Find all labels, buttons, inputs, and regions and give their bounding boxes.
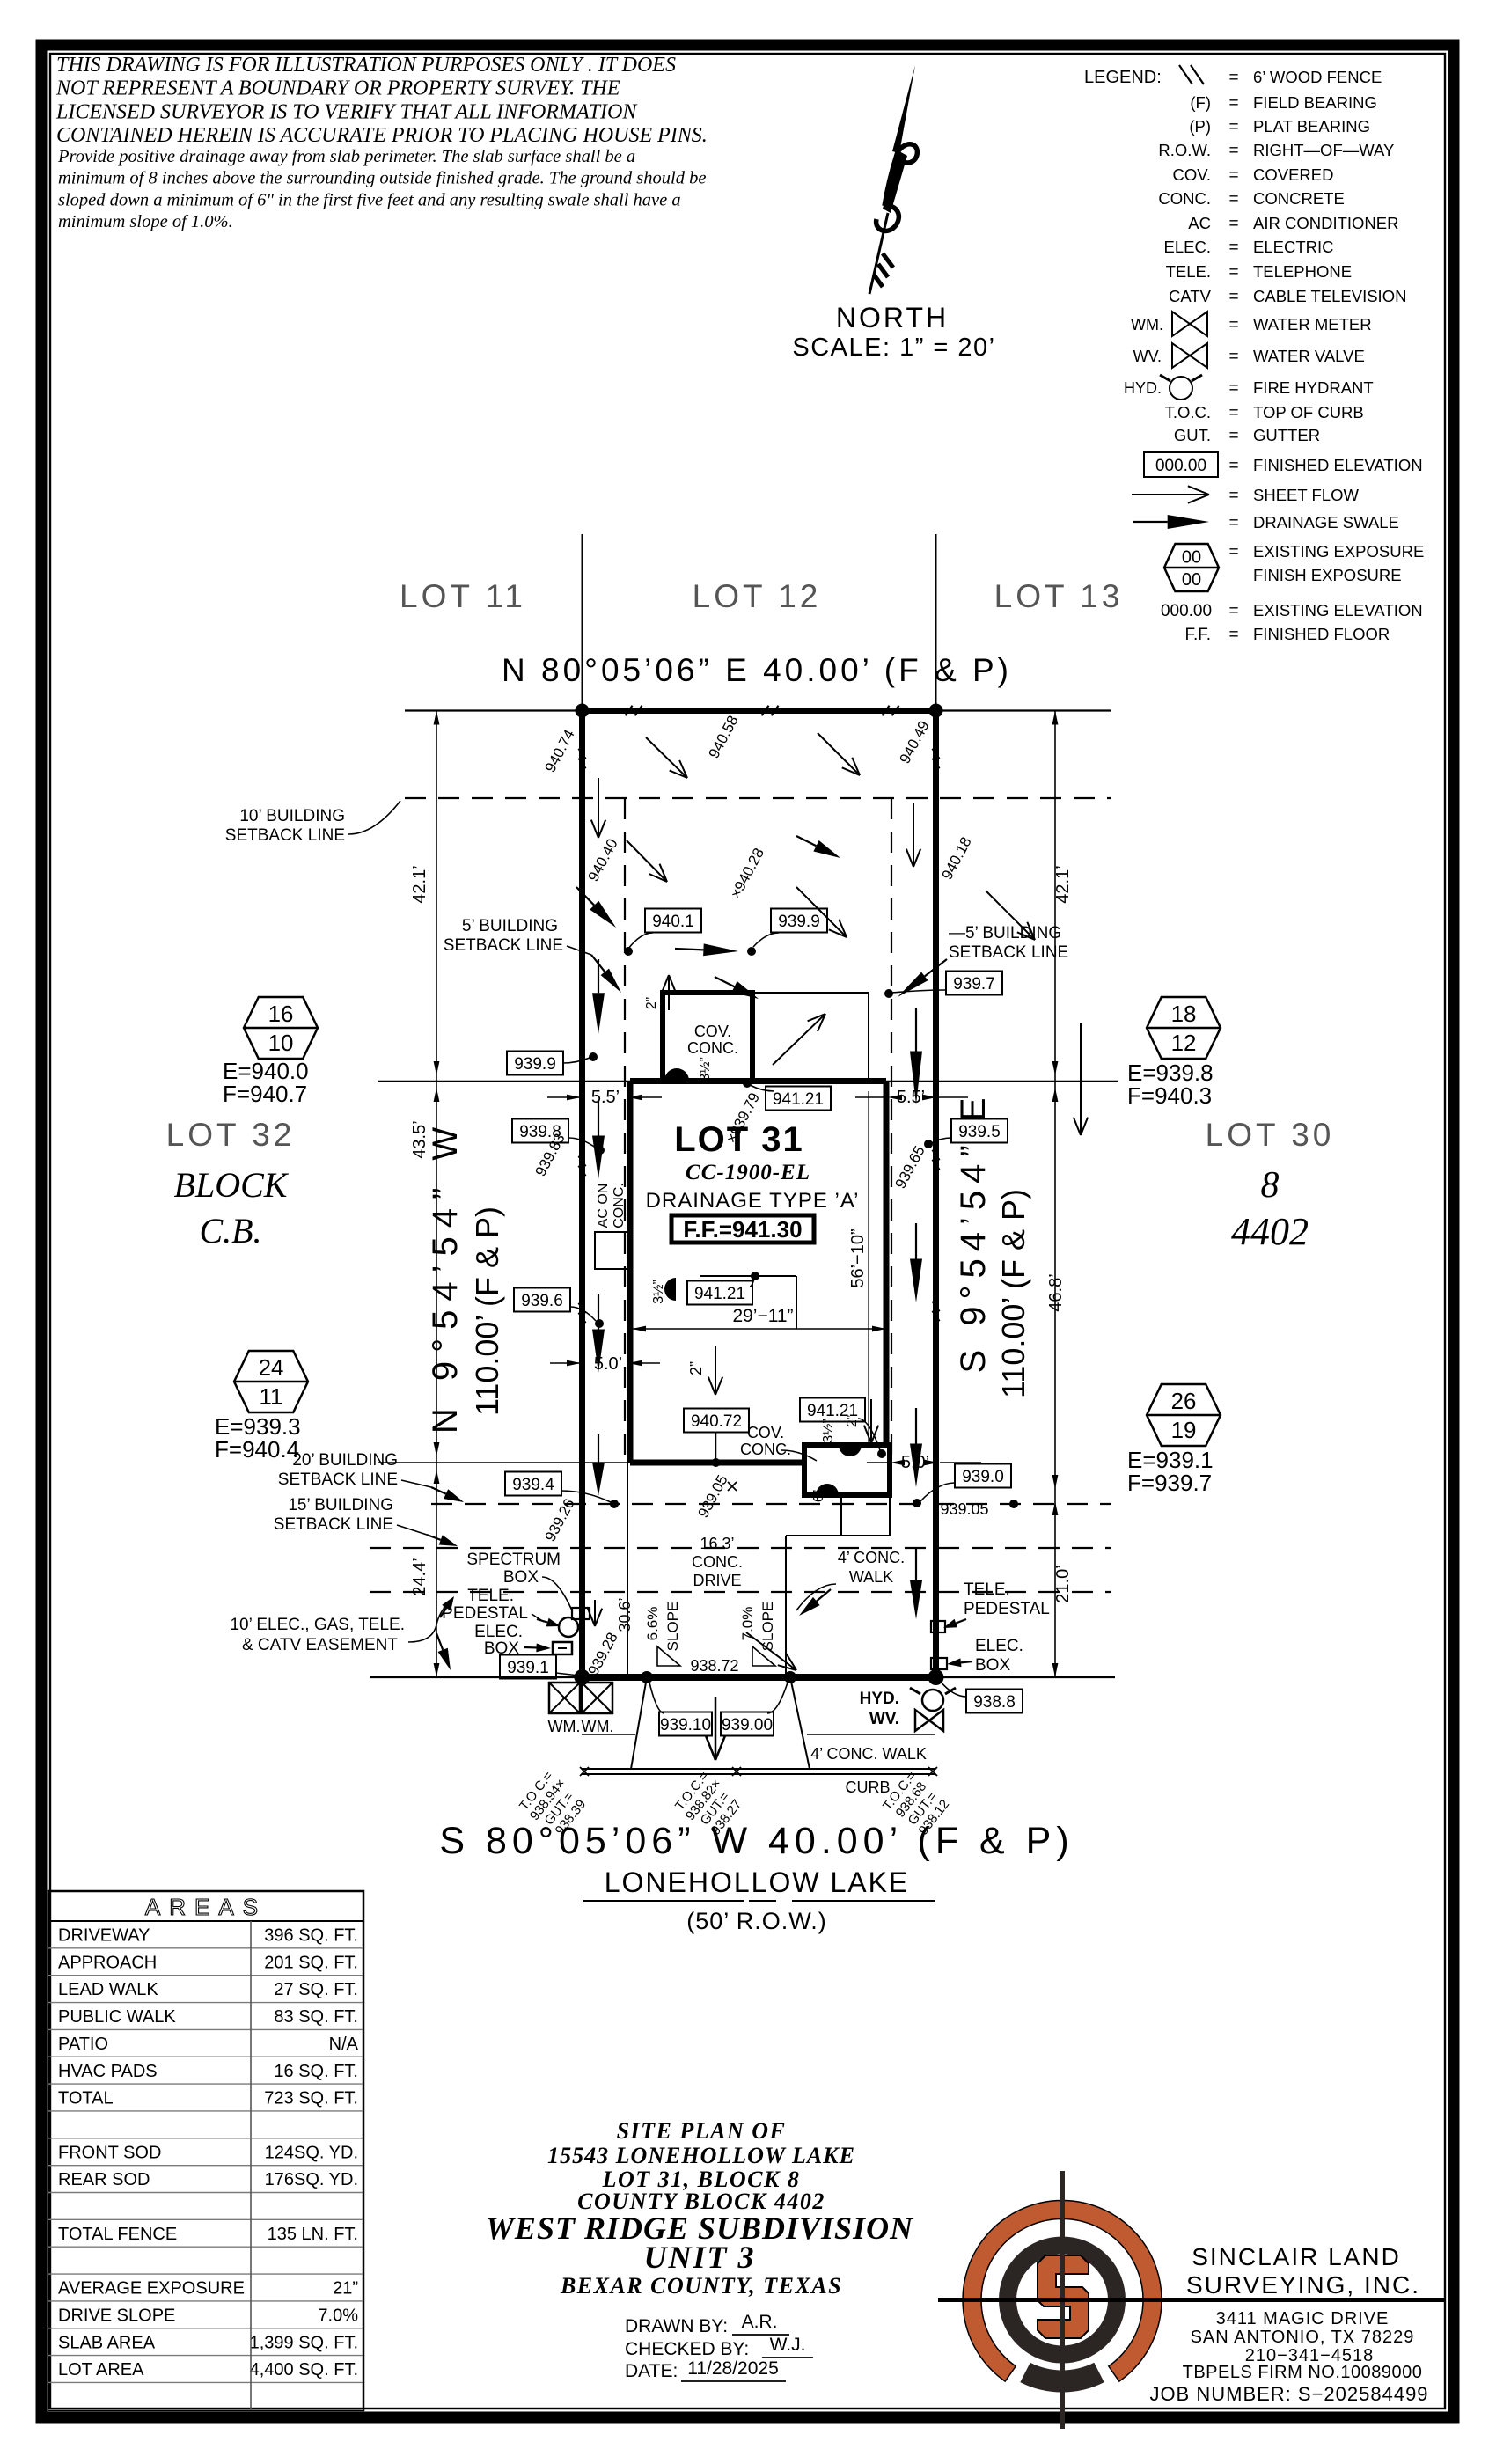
svg-text:HYD.: HYD. [1124,379,1162,397]
svg-text:11/28/2025: 11/28/2025 [687,2358,779,2379]
svg-text:2”: 2” [687,1361,705,1375]
svg-text:16.3’: 16.3’ [700,1535,734,1552]
svg-text:=: = [1228,514,1238,532]
svg-text:LOT 32: LOT 32 [166,1117,296,1153]
svg-text:TOP OF CURB: TOP OF CURB [1253,403,1364,422]
svg-text:=: = [1228,118,1238,136]
svg-text:FIELD BEARING: FIELD BEARING [1253,93,1377,112]
svg-text:CONCRETE: CONCRETE [1253,189,1345,208]
svg-text:RIGHT—OF—WAY: RIGHT—OF—WAY [1253,141,1394,159]
svg-text:LEAD WALK: LEAD WALK [58,1980,158,1999]
svg-text:=: = [1228,427,1238,445]
svg-text:DRAWN BY:: DRAWN BY: [625,2316,728,2336]
svg-text:2”: 2” [644,997,659,1009]
svg-text:TOTAL FENCE: TOTAL FENCE [58,2225,177,2244]
svg-text:WM.: WM. [548,1718,581,1735]
svg-text:TOTAL: TOTAL [58,2089,114,2108]
svg-text:24.4’: 24.4’ [410,1558,429,1595]
svg-text:TELE.: TELE. [964,1580,1010,1599]
svg-text:DRAINAGE TYPE ’A’: DRAINAGE TYPE ’A’ [646,1189,860,1213]
svg-text:CONC.: CONC. [692,1553,743,1571]
svg-text:SETBACK LINE: SETBACK LINE [274,1515,393,1534]
svg-text:WM.: WM. [1131,316,1163,334]
svg-text:NORTH: NORTH [836,302,949,334]
svg-text:TELE.: TELE. [467,1587,514,1605]
svg-text:T.O.C.: T.O.C. [1165,403,1211,422]
svg-text:ELECTRIC: ELECTRIC [1253,238,1334,256]
svg-text:LICENSED SURVEYOR IS TO VERIFY: LICENSED SURVEYOR IS TO VERIFY THAT ALL … [55,100,638,123]
svg-text:20’ BUILDING: 20’ BUILDING [292,1451,398,1470]
svg-text:00: 00 [1182,570,1201,590]
svg-text:NOT REPRESENT A BOUNDARY OR PR: NOT REPRESENT A BOUNDARY OR PROPERTY SUR… [55,77,620,100]
svg-text:939.0: 939.0 [962,1468,1004,1486]
svg-text:WV.: WV. [1133,348,1162,365]
svg-text:SLOPE: SLOPE [759,1602,776,1652]
svg-text:939.1: 939.1 [507,1659,549,1677]
svg-text:=: = [1228,487,1238,505]
svg-text:939.9: 939.9 [514,1055,556,1074]
svg-text:10: 10 [268,1031,294,1056]
svg-text:201 SQ. FT.: 201 SQ. FT. [264,1953,358,1972]
svg-text:SETBACK LINE: SETBACK LINE [225,826,345,845]
svg-text:=: = [1228,166,1238,185]
svg-text:=: = [1228,379,1238,398]
svg-text:LOT 30: LOT 30 [1206,1117,1335,1153]
svg-text:BLOCK: BLOCK [174,1165,290,1205]
svg-text:BOX: BOX [503,1568,539,1587]
svg-text:WATER METER: WATER METER [1253,315,1372,334]
svg-text:AREAS: AREAS [145,1894,267,1920]
svg-text:12: 12 [1171,1031,1197,1056]
svg-text:PATIO: PATIO [58,2035,108,2054]
svg-text:LOT 11: LOT 11 [400,578,526,614]
svg-text:FINISHED ELEVATION: FINISHED ELEVATION [1253,456,1423,474]
svg-text:SLOPE: SLOPE [664,1602,681,1652]
svg-text:DRIVEWAY: DRIVEWAY [58,1926,150,1946]
svg-text:Provide positive drainage away: Provide positive drainage away from slab… [57,147,635,166]
svg-text:3½”: 3½” [698,1057,713,1082]
svg-text:18: 18 [1171,1002,1197,1027]
svg-text:APPROACH: APPROACH [58,1953,157,1972]
svg-text:CABLE TELEVISION: CABLE TELEVISION [1253,287,1406,305]
svg-text:124SQ. YD.: 124SQ. YD. [265,2143,358,2162]
svg-text:SETBACK LINE: SETBACK LINE [444,936,563,955]
svg-text:FINISH EXPOSURE: FINISH EXPOSURE [1253,566,1402,584]
svg-text:A.R.: A.R. [742,2312,778,2332]
svg-text:=: = [1228,457,1238,475]
svg-text:938.8: 938.8 [973,1693,1016,1712]
svg-text:29’−11”: 29’−11” [732,1306,793,1326]
svg-text:& CATV EASEMENT: & CATV EASEMENT [242,1636,398,1654]
svg-text:CONC.: CONC. [1158,189,1211,208]
svg-text:ELEC.: ELEC. [975,1637,1023,1655]
svg-text:5’ BUILDING: 5’ BUILDING [462,917,558,935]
svg-text:minimum slope of 1.0%.: minimum slope of 1.0%. [58,212,233,231]
svg-text:SINCLAIR LAND: SINCLAIR LAND [1192,2243,1401,2270]
svg-text:DRIVE SLOPE: DRIVE SLOPE [58,2306,175,2325]
svg-text:8: 8 [1261,1165,1280,1206]
svg-text:PEDESTAL: PEDESTAL [442,1604,528,1623]
svg-text:2”: 2” [845,1415,860,1427]
svg-text:3411 MAGIC DRIVE: 3411 MAGIC DRIVE [1216,2309,1390,2328]
svg-text:AC: AC [1188,214,1211,232]
svg-text:N/A: N/A [329,2035,359,2054]
svg-text:F=940.7: F=940.7 [223,1081,307,1107]
svg-text:FINISHED FLOOR: FINISHED FLOOR [1253,625,1390,643]
svg-text:F.F.=941.30: F.F.=941.30 [683,1216,802,1243]
svg-text:F=940.3: F=940.3 [1127,1082,1212,1109]
svg-text:TELEPHONE: TELEPHONE [1253,262,1352,281]
svg-text:(P): (P) [1189,117,1211,136]
svg-text:46.8’: 46.8’ [1046,1273,1066,1311]
svg-text:42.1’: 42.1’ [410,865,429,903]
svg-text:939.6: 939.6 [521,1292,563,1310]
svg-text:SAN ANTONIO, TX 78229: SAN ANTONIO, TX 78229 [1191,2328,1415,2347]
svg-text:5.5’: 5.5’ [591,1088,620,1107]
svg-text:135 LN. FT.: 135 LN. FT. [268,2225,358,2244]
svg-text:=: = [1228,190,1238,209]
svg-text:SCALE: 1” = 20’: SCALE: 1” = 20’ [792,334,995,362]
svg-text:ELEC.: ELEC. [474,1623,523,1641]
svg-text:LONEHOLLOW LAKE: LONEHOLLOW LAKE [605,1866,910,1898]
svg-text:COV.: COV. [1172,165,1211,184]
svg-text:F=940.4: F=940.4 [215,1436,299,1463]
svg-text:N 80°05’06” E 40.00’ (F & P): N 80°05’06” E 40.00’ (F & P) [502,652,1012,688]
svg-text:REAR SOD: REAR SOD [58,2170,150,2189]
svg-text:CURB: CURB [845,1778,890,1796]
svg-text:000.00: 000.00 [1155,457,1206,475]
svg-text:CHECKED BY:: CHECKED BY: [625,2339,749,2359]
svg-text:941.21: 941.21 [773,1090,824,1109]
svg-text:=: = [1228,288,1238,306]
svg-text:SPECTRUM: SPECTRUM [466,1551,561,1569]
svg-text:minimum of 8 inches above the: minimum of 8 inches above the surroundin… [58,169,706,188]
svg-text:F.F.: F.F. [1184,626,1211,644]
svg-text:939.10: 939.10 [660,1716,711,1734]
svg-text:FRONT SOD: FRONT SOD [58,2143,161,2162]
svg-text:21”: 21” [333,2279,358,2299]
svg-text:PUBLIC WALK: PUBLIC WALK [58,2007,176,2027]
svg-text:938.72: 938.72 [690,1657,738,1675]
svg-text:SLAB AREA: SLAB AREA [58,2333,156,2352]
svg-text:SETBACK LINE: SETBACK LINE [278,1470,398,1489]
svg-text:CONC.: CONC. [687,1039,738,1057]
svg-text:ELEC.: ELEC. [1164,238,1211,256]
svg-text:DRIVE: DRIVE [693,1572,741,1589]
svg-text:SHEET FLOW: SHEET FLOW [1253,486,1359,504]
svg-text:27 SQ. FT.: 27 SQ. FT. [274,1980,358,1999]
svg-text:939.4: 939.4 [512,1476,554,1494]
svg-text:TBPELS FIRM NO.10089000: TBPELS FIRM NO.10089000 [1183,2363,1423,2382]
svg-text:WM.: WM. [582,1718,614,1735]
svg-text:15’ BUILDING: 15’ BUILDING [288,1496,393,1514]
svg-text:83 SQ. FT.: 83 SQ. FT. [274,2007,358,2027]
svg-text:=: = [1228,69,1238,87]
svg-text:S 80°05’06” W 40.00’ (F & P): S 80°05’06” W 40.00’ (F & P) [439,1820,1074,1862]
svg-text:21.0’: 21.0’ [1053,1565,1073,1602]
svg-text:JOB NUMBER: S−202584499: JOB NUMBER: S−202584499 [1149,2383,1428,2405]
svg-text:AIR CONDITIONER: AIR CONDITIONER [1253,214,1398,232]
svg-text:110.00’ (F & P): 110.00’ (F & P) [469,1206,505,1416]
svg-text:CONTAINED HEREIN IS ACCURATE P: CONTAINED HEREIN IS ACCURATE PRIOR TO PL… [56,124,708,147]
svg-text:24: 24 [259,1356,284,1381]
svg-text:000.00: 000.00 [1161,602,1212,620]
svg-text:LEGEND:: LEGEND: [1084,68,1162,87]
svg-text:SITE PLAN OF: SITE PLAN OF [617,2118,787,2144]
svg-text:N 9°54’54” W: N 9°54’54” W [426,1118,465,1434]
svg-text:CC-1900-EL: CC-1900-EL [686,1161,810,1184]
svg-text:16 SQ. FT.: 16 SQ. FT. [274,2062,358,2081]
svg-text:SURVEYING, INC.: SURVEYING, INC. [1186,2271,1420,2299]
svg-text:42.1’: 42.1’ [1053,865,1073,903]
svg-text:940.1: 940.1 [652,913,694,931]
svg-text:EXISTING EXPOSURE: EXISTING EXPOSURE [1253,542,1424,561]
svg-text:sloped down a minimum of 6" in: sloped down a minimum of 6" in the first… [58,190,681,209]
svg-text:939.7: 939.7 [953,975,995,994]
svg-text:4’ CONC. WALK: 4’ CONC. WALK [810,1745,927,1763]
svg-text:=: = [1228,142,1238,160]
svg-text:11: 11 [260,1385,283,1410]
svg-text:=: = [1228,215,1238,233]
svg-text:56’−10”: 56’−10” [848,1228,868,1287]
svg-text:723 SQ. FT.: 723 SQ. FT. [264,2089,358,2108]
svg-text:GUT.: GUT. [1174,426,1211,444]
svg-text:1,399 SQ. FT.: 1,399 SQ. FT. [250,2333,358,2352]
svg-text:7.0%: 7.0% [318,2306,358,2325]
svg-text:939.00: 939.00 [722,1716,773,1734]
svg-text:COV.: COV. [747,1424,784,1441]
svg-text:PEDESTAL: PEDESTAL [964,1600,1050,1618]
svg-text:BOX: BOX [975,1656,1010,1675]
svg-text:6”: 6” [811,1490,826,1502]
svg-text:4,400 SQ. FT.: 4,400 SQ. FT. [250,2360,358,2380]
svg-text:AC ON: AC ON [596,1184,611,1228]
svg-text:=: = [1228,404,1238,422]
svg-text:C.B.: C.B. [199,1211,261,1250]
svg-text:BOX: BOX [484,1639,519,1658]
svg-text:396 SQ. FT.: 396 SQ. FT. [264,1926,358,1946]
svg-text:941.21: 941.21 [694,1285,745,1303]
svg-text:00: 00 [1182,548,1201,568]
svg-text:6’ WOOD FENCE: 6’ WOOD FENCE [1253,68,1382,86]
svg-text:DRAINAGE SWALE: DRAINAGE SWALE [1253,513,1399,532]
svg-text:CATV: CATV [1169,287,1212,305]
svg-text:3½”: 3½” [651,1280,666,1304]
svg-text:30.6’: 30.6’ [616,1597,634,1632]
svg-text:SETBACK LINE: SETBACK LINE [949,943,1068,962]
svg-text:940.72: 940.72 [691,1412,742,1431]
svg-text:110.00’ (F & P): 110.00’ (F & P) [995,1189,1031,1398]
svg-text:=: = [1228,543,1238,561]
svg-text:EXISTING ELEVATION: EXISTING ELEVATION [1253,601,1423,620]
svg-text:19: 19 [1171,1419,1197,1443]
svg-text:—5’ BUILDING: —5’ BUILDING [949,924,1061,942]
svg-text:W.J.: W.J. [770,2335,806,2355]
svg-text:939.5: 939.5 [958,1123,1001,1141]
svg-text:TELE.: TELE. [1166,262,1211,281]
svg-text:AVERAGE EXPOSURE: AVERAGE EXPOSURE [58,2279,245,2299]
svg-text:939.05: 939.05 [940,1500,988,1518]
svg-text:DATE:: DATE: [625,2361,678,2381]
svg-text:=: = [1228,263,1238,282]
svg-text:26: 26 [1171,1390,1197,1414]
svg-text:THIS DRAWING IS FOR ILLUSTRATI: THIS DRAWING IS FOR ILLUSTRATION PURPOSE… [56,54,676,77]
svg-text:=: = [1228,602,1238,620]
svg-text:CONC.: CONC. [740,1441,791,1458]
svg-text:6.6%: 6.6% [644,1607,661,1641]
svg-text:=: = [1228,626,1238,644]
svg-text:4’ CONC.: 4’ CONC. [838,1549,905,1566]
svg-text:COVERED: COVERED [1253,165,1334,184]
svg-text:FIRE HYDRANT: FIRE HYDRANT [1253,378,1374,397]
svg-text:PLAT BEARING: PLAT BEARING [1253,117,1370,136]
svg-text:=: = [1228,94,1238,113]
svg-text:WATER VALVE: WATER VALVE [1253,347,1365,365]
svg-text:=: = [1228,316,1238,334]
svg-text:(50’ R.O.W.): (50’ R.O.W.) [686,1908,827,1934]
svg-text:LOT AREA: LOT AREA [58,2360,144,2380]
svg-text:10’ BUILDING: 10’ BUILDING [239,807,345,825]
svg-text:R.O.W.: R.O.W. [1158,141,1211,159]
svg-text:176SQ. YD.: 176SQ. YD. [265,2170,358,2189]
svg-text:BEXAR COUNTY, TEXAS: BEXAR COUNTY, TEXAS [560,2273,842,2299]
svg-text:HYD.: HYD. [860,1690,899,1708]
svg-text:7.0%: 7.0% [739,1607,756,1641]
svg-text:10’ ELEC., GAS, TELE.: 10’ ELEC., GAS, TELE. [230,1616,405,1634]
svg-text:LOT 12: LOT 12 [693,578,822,614]
svg-text:=: = [1228,238,1238,257]
svg-text:CONC.: CONC. [612,1183,627,1228]
svg-text:HVAC PADS: HVAC PADS [58,2062,158,2081]
svg-text:(F): (F) [1190,93,1211,112]
svg-text:16: 16 [268,1002,294,1027]
svg-text:COV.: COV. [694,1023,731,1040]
svg-text:WALK: WALK [849,1568,893,1586]
svg-text:UNIT 3: UNIT 3 [644,2240,756,2275]
svg-text:=: = [1228,348,1238,366]
svg-text:GUTTER: GUTTER [1253,426,1320,444]
svg-text:15543 LONEHOLLOW LAKE: 15543 LONEHOLLOW LAKE [547,2143,855,2168]
svg-text:LOT 13: LOT 13 [994,578,1124,614]
svg-text:WV.: WV. [869,1710,899,1728]
svg-text:939.9: 939.9 [778,913,820,931]
svg-text:F=939.7: F=939.7 [1127,1470,1212,1496]
svg-text:4402: 4402 [1231,1210,1309,1253]
